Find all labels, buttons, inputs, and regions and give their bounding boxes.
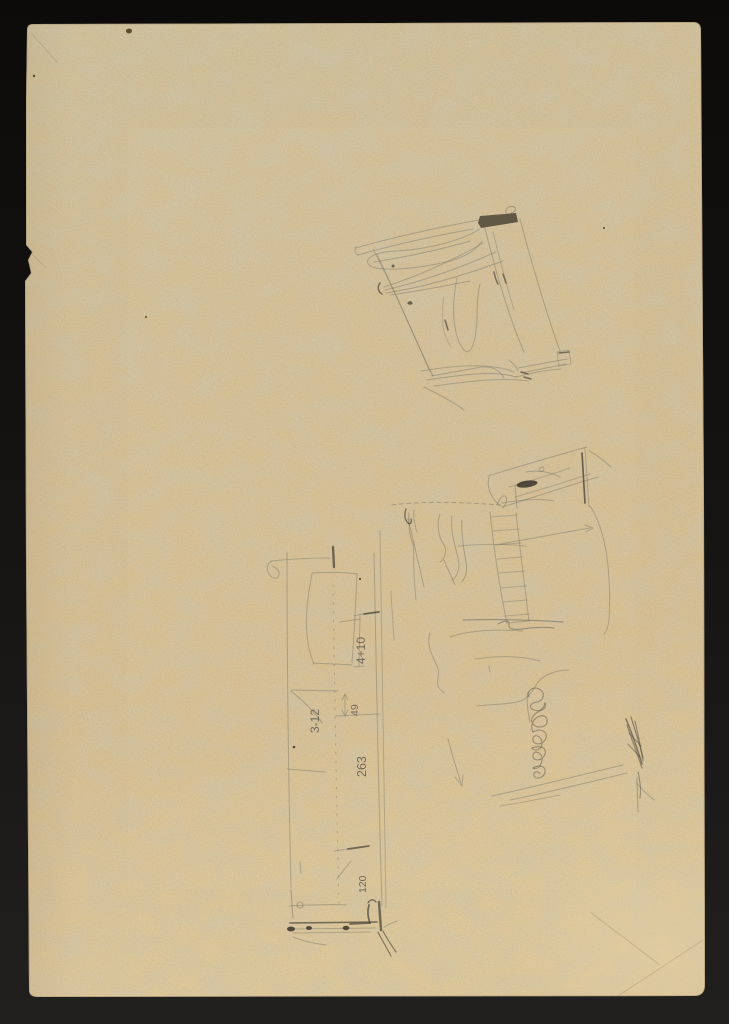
svg-text:49: 49 (349, 704, 361, 716)
svg-text:4+10: 4+10 (354, 637, 368, 664)
svg-text:120: 120 (357, 875, 369, 893)
svg-text:3-12: 3-12 (308, 709, 322, 733)
svg-text:263: 263 (355, 756, 369, 777)
